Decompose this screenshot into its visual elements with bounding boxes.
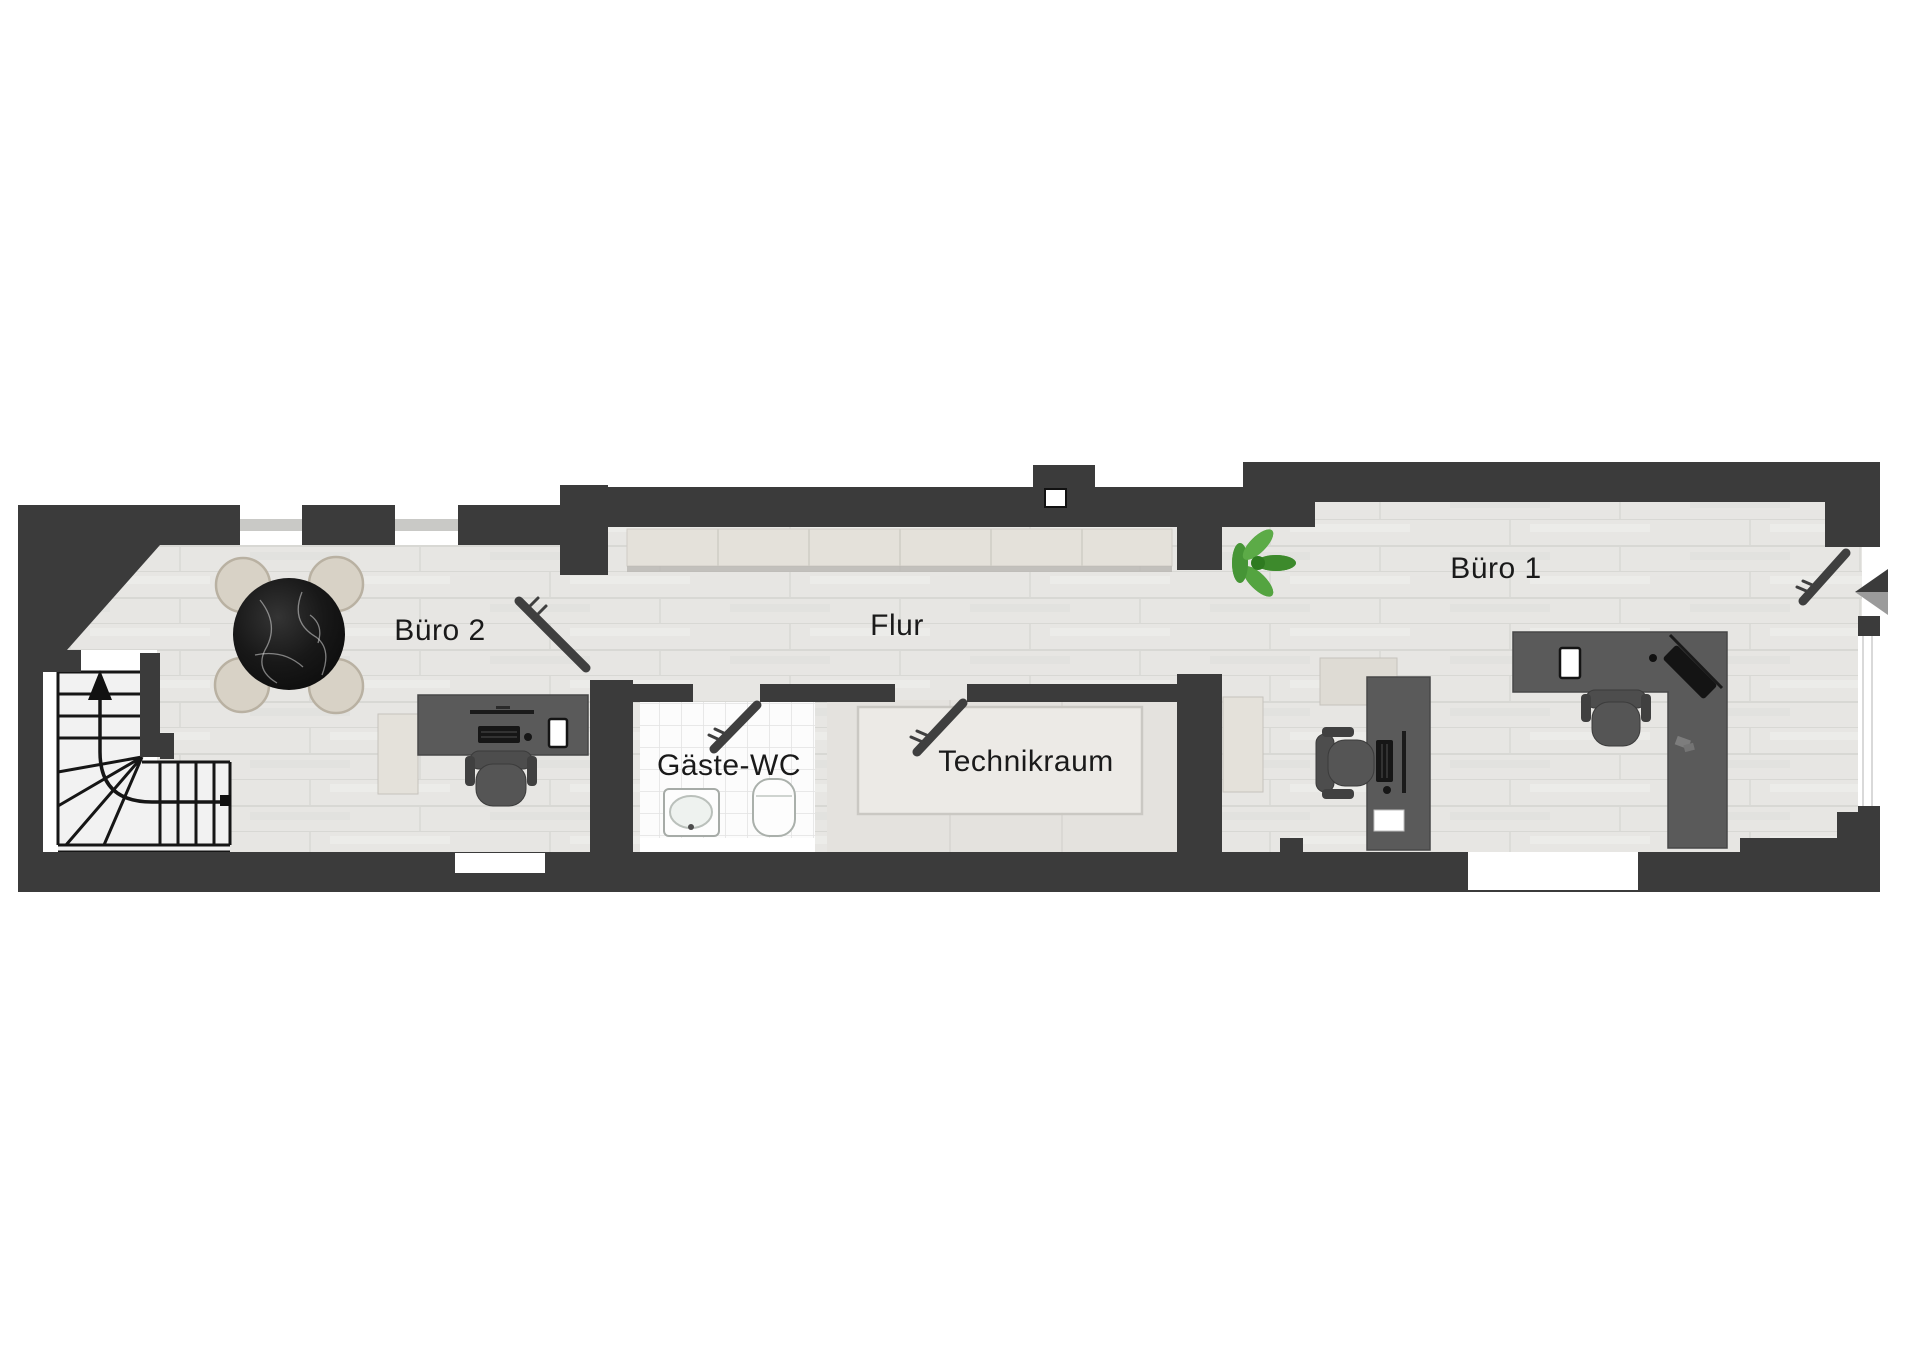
wall-technik-east: [1177, 674, 1222, 852]
flur-sideboard: [627, 529, 1172, 572]
wall-buero1-north: [1315, 462, 1825, 502]
cabinet-passage: [1223, 697, 1263, 792]
wall-wc-north-a: [633, 684, 693, 702]
window-top-left-1: [240, 505, 302, 545]
mouse-icon: [524, 733, 532, 741]
room-label-technikraum: Technikraum: [938, 745, 1114, 779]
room-label-flur: Flur: [870, 609, 924, 643]
wc-sink: [664, 789, 719, 836]
desk-buero2: [418, 695, 588, 755]
wall-stair-right: [140, 653, 160, 757]
room-label-buero1: Büro 1: [1450, 552, 1541, 586]
monitor-icon: [470, 710, 534, 714]
sideboard-buero2: [378, 714, 418, 794]
mouse-icon: [1383, 786, 1391, 794]
wall-pillar-sideboard: [1177, 487, 1222, 570]
window-buero1-south: [1468, 852, 1638, 890]
wall-column-marker: [1045, 489, 1066, 507]
wall-technik-north: [967, 684, 1177, 702]
wall-ne-corner: [1825, 462, 1880, 547]
mouse-icon: [1649, 654, 1657, 662]
window-top-left-2: [395, 505, 458, 545]
round-table: [233, 578, 345, 690]
desk-middle: [1367, 677, 1430, 850]
keyboard-icon: [478, 726, 520, 743]
wall-east-sill-bottom: [1858, 806, 1880, 838]
wall-east-sill-top: [1858, 616, 1880, 636]
window-buero2-south: [455, 853, 545, 873]
room-label-buero2: Büro 2: [394, 614, 485, 648]
meeting-area: [215, 557, 363, 713]
paper-icon: [1374, 810, 1404, 831]
floor-plan: Büro 2 Flur Gäste-WC Technikraum Büro 1: [0, 0, 1920, 1357]
stair-handrail-post: [220, 795, 231, 806]
window-wc-south: [640, 838, 815, 852]
monitor-icon: [1402, 731, 1406, 793]
wall-flur-north: [608, 487, 1243, 527]
wc-toilet: [753, 779, 795, 836]
wall-pillar-flur: [560, 485, 608, 575]
phone-icon: [549, 719, 567, 747]
window-buero1-east: [1858, 636, 1878, 806]
room-label-gaeste-wc: Gäste-WC: [657, 749, 801, 783]
phone-icon: [1560, 648, 1580, 678]
wall-stair-stub-left: [43, 650, 81, 672]
wall-stair-nub: [160, 733, 174, 759]
keyboard-icon: [1376, 740, 1393, 782]
wall-divider-wc: [590, 680, 633, 852]
wall-west-upper: [18, 505, 58, 650]
floor-plan-graphic: [0, 0, 1920, 1357]
wall-wc-north-b: [760, 684, 895, 702]
wall-south-step-small: [1280, 838, 1303, 852]
wall-transition: [1243, 462, 1315, 527]
